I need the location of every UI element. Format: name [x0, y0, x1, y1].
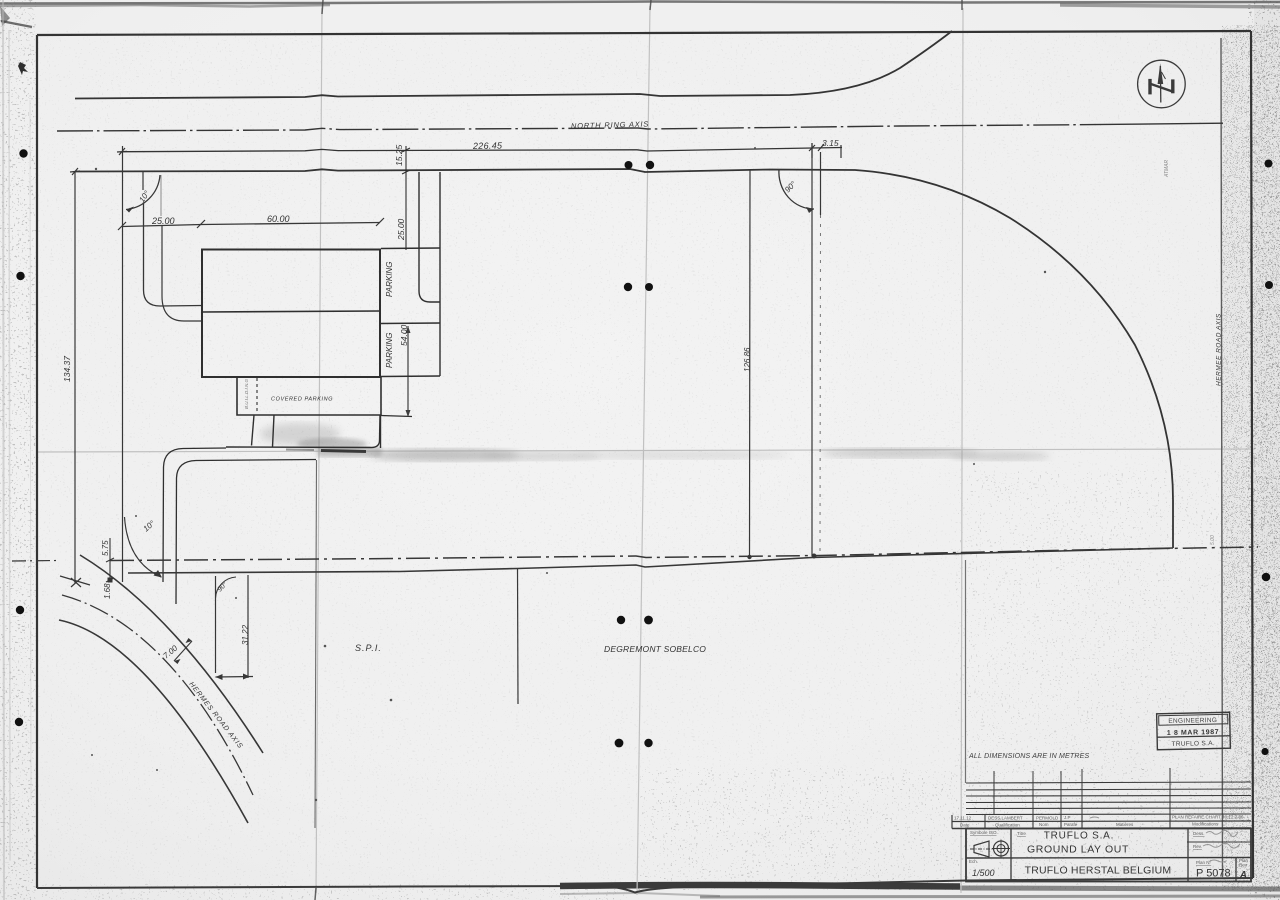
svg-text:Rev.: Rev.: [1193, 844, 1202, 849]
svg-text:COVERED PARKING: COVERED PARKING: [271, 397, 333, 403]
svg-text:Rev: Rev: [1239, 863, 1248, 868]
svg-text:Modifications: Modifications: [1192, 822, 1219, 827]
svg-text:25.00: 25.00: [151, 216, 175, 226]
svg-text:DEGREMONT SOBELCO: DEGREMONT SOBELCO: [604, 644, 706, 654]
svg-text:5.00: 5.00: [1210, 535, 1216, 545]
svg-text:S.P.I.: S.P.I.: [355, 643, 382, 653]
svg-text:TRUFLO S.A.: TRUFLO S.A.: [1044, 831, 1114, 842]
svg-text:15.25: 15.25: [394, 144, 404, 166]
svg-text:Plan Nº: Plan Nº: [1196, 860, 1212, 865]
svg-text:ENGINEERING: ENGINEERING: [1168, 717, 1217, 725]
svg-text:25.00: 25.00: [396, 218, 406, 241]
svg-text:126.86: 126.86: [743, 347, 752, 372]
svg-text:TRUFLO HERSTAL BELGIUM: TRUFLO HERSTAL BELGIUM: [1025, 865, 1172, 877]
svg-text:P 5078: P 5078: [1196, 868, 1231, 880]
svg-text:GROUND LAY OUT: GROUND LAY OUT: [1027, 844, 1129, 856]
svg-text:5.75: 5.75: [101, 540, 110, 556]
svg-text:Dess.: Dess.: [1193, 831, 1205, 836]
svg-text:3.15: 3.15: [822, 138, 839, 148]
svg-text:Ech.: Ech.: [969, 859, 978, 864]
svg-text:Parafe: Parafe: [1064, 822, 1078, 827]
svg-text:A: A: [1239, 870, 1247, 881]
svg-text:DESS.LAMBERT: DESS.LAMBERT: [988, 816, 1023, 821]
svg-text:31.22: 31.22: [241, 624, 250, 645]
svg-text:1 8 MAR 1987: 1 8 MAR 1987: [1167, 729, 1219, 737]
svg-text:134.37: 134.37: [62, 356, 72, 382]
svg-text:ATMAR: ATMAR: [1164, 159, 1170, 178]
svg-text:B.U.I.L.D.I.N.G: B.U.I.L.D.I.N.G: [244, 378, 249, 409]
svg-text:Date: Date: [960, 823, 970, 828]
svg-text:HERMEE ROAD AXIS: HERMEE ROAD AXIS: [1216, 313, 1223, 386]
svg-text:PARKING: PARKING: [385, 262, 394, 297]
svg-text:Matières: Matières: [1116, 822, 1134, 827]
svg-text:60.00: 60.00: [267, 214, 290, 224]
svg-text:Titre: Titre: [1017, 831, 1026, 836]
svg-text:Qualification: Qualification: [995, 823, 1020, 828]
svg-text:Symbole ISO: Symbole ISO: [970, 830, 997, 835]
svg-text:226.45: 226.45: [472, 140, 503, 151]
svg-text:1/500: 1/500: [972, 868, 995, 878]
svg-text:Nom: Nom: [1039, 822, 1049, 827]
svg-text:PERMOLD: PERMOLD: [1036, 816, 1059, 821]
svg-text:TRUFLO S.A.: TRUFLO S.A.: [1172, 740, 1216, 748]
svg-text:54.00: 54.00: [399, 324, 409, 346]
svg-text:1.68: 1.68: [103, 583, 112, 599]
svg-text:17.11.12: 17.11.12: [954, 816, 972, 821]
svg-text:ALL DIMENSIONS ARE IN METR: ALL DIMENSIONS ARE IN METRES: [968, 753, 1089, 760]
svg-text:PLAN REFAIRE CHART 40.12.2.80: PLAN REFAIRE CHART 40.12.2.80: [1172, 815, 1244, 820]
svg-text:PARKING: PARKING: [385, 333, 394, 368]
svg-text:J.P: J.P: [1064, 815, 1071, 820]
